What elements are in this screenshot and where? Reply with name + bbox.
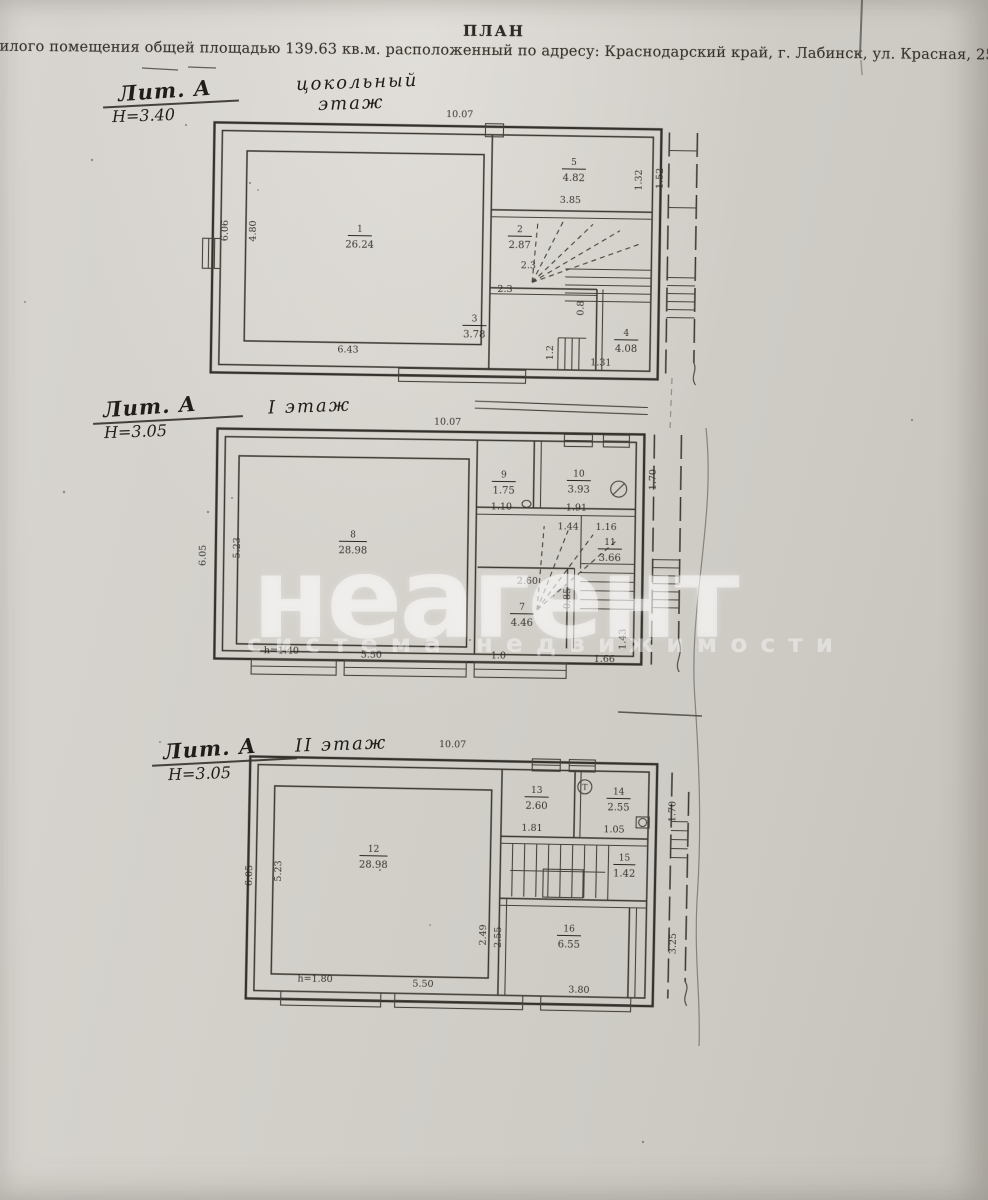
dim-label: 1.10 [491,501,512,512]
water-heater-icon: Т [578,780,592,794]
watermark-tagline: система недвижимости [247,629,846,658]
dim-label: 10.07 [446,109,473,120]
floor-plan-basement: 10.07 1 26.24 5 4.82 3.85 1.32 1.52 2 2.… [185,95,750,408]
dim-label: 5.50 [412,979,433,990]
room-number: 3 [472,314,478,324]
sink-icon [636,817,649,828]
floor-plan-second-floor-drawing: Т 10.07 12 28.98 6.05 5.23 h=1.80 5.50 3… [222,723,738,1043]
room-area: 2.55 [607,802,629,813]
plan1-height-note: Н=3.40 [112,105,176,126]
room-area: 2.87 [508,240,530,251]
room-number: 13 [531,786,543,796]
room-number: 12 [368,845,380,855]
toilet-icon [522,500,531,507]
plan1-floor-label-1: цокольный [296,70,419,95]
room-area: 2.60 [525,801,547,812]
room-area: 26.24 [345,239,374,250]
dim-label: 1.32 [634,169,645,190]
dim-label: 1.2 [545,345,556,360]
dim-label: 10.07 [439,739,466,751]
second-floor-stairs [510,843,606,898]
dim-label: 2.49 [478,924,489,945]
floor-plan-basement-drawing: 10.07 1 26.24 5 4.82 3.85 1.32 1.52 2 2.… [185,95,750,404]
dim-label: 5.23 [232,537,243,558]
dim-label: 1.81 [521,823,542,834]
room-area: 3.78 [463,329,485,340]
room-number: 14 [613,787,625,797]
dim-label: 1.70 [667,801,678,822]
dim-label: 1.05 [603,824,624,835]
basement-windows [201,119,530,383]
fold-tick [861,60,862,75]
dim-label: 1.31 [590,357,611,368]
basement-side-passage [666,133,700,385]
dim-label: 5.23 [273,860,284,881]
room-area: 1.42 [613,868,635,879]
underline-marks [142,67,216,70]
svg-text:Т: Т [582,783,588,792]
dim-label: 6.06 [220,220,231,241]
boiler-icon [611,481,627,497]
dim-label: 2.3 [521,260,536,271]
dim-label: 10.07 [434,417,461,428]
room-number: 1 [357,225,363,235]
scanned-floor-plan-page: ПЛАН жилого помещения общей площадью 139… [0,0,988,1200]
room-number: 5 [571,158,577,168]
dim-label: 6.05 [244,865,255,886]
dim-label: 1.16 [596,522,617,533]
plan2-height-note: Н=3.05 [104,421,168,442]
dim-label: 1.52 [655,168,666,189]
room-number: 15 [619,854,631,864]
dim-label: 4.80 [248,220,259,241]
dim-label: 3.85 [560,195,581,206]
room-number: 16 [563,924,575,934]
room-number: 2 [517,225,523,235]
room-area: 6.55 [558,939,580,950]
dim-label: 3.25 [668,933,679,954]
dim-label: 6.05 [198,545,209,566]
floor-plan-second-floor: Т 10.07 12 28.98 6.05 5.23 h=1.80 5.50 3… [222,723,738,1047]
dim-label: 1.91 [566,502,587,513]
dim-label: 1.70 [648,469,659,490]
dim-label: 0.8 [576,301,587,316]
dim-label: 3.80 [568,985,589,996]
dim-label: 2.55 [493,927,504,948]
room-area: 1.75 [492,485,514,496]
room-area: 4.82 [563,173,585,184]
room-area: 4.08 [615,344,637,355]
room-number: 9 [501,470,507,480]
dim-label: 6.43 [337,344,358,355]
plan3-height-note: Н=3.05 [168,763,232,784]
dim-label: h=1.80 [297,973,332,985]
room-number: 10 [573,469,585,479]
room-area: 3.93 [567,484,589,495]
dim-label: 1.44 [558,521,579,532]
dim-label: 2.3 [497,284,512,295]
room-number: 4 [623,329,629,339]
basement-walls [211,122,662,379]
room-area: 28.98 [359,860,388,872]
